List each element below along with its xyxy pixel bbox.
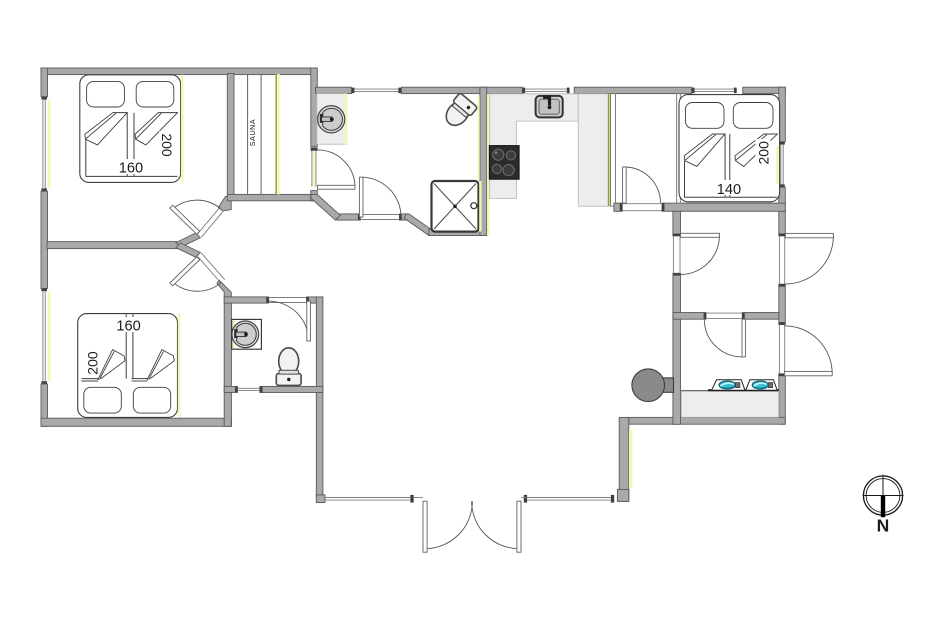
svg-text:200: 200 xyxy=(755,141,771,165)
svg-text:160: 160 xyxy=(116,319,140,335)
svg-text:140: 140 xyxy=(717,182,741,198)
svg-text:N: N xyxy=(877,516,890,536)
svg-text:200: 200 xyxy=(159,133,175,157)
svg-text:160: 160 xyxy=(119,161,143,177)
svg-text:200: 200 xyxy=(85,351,101,375)
svg-text:SAUNA: SAUNA xyxy=(248,119,257,146)
